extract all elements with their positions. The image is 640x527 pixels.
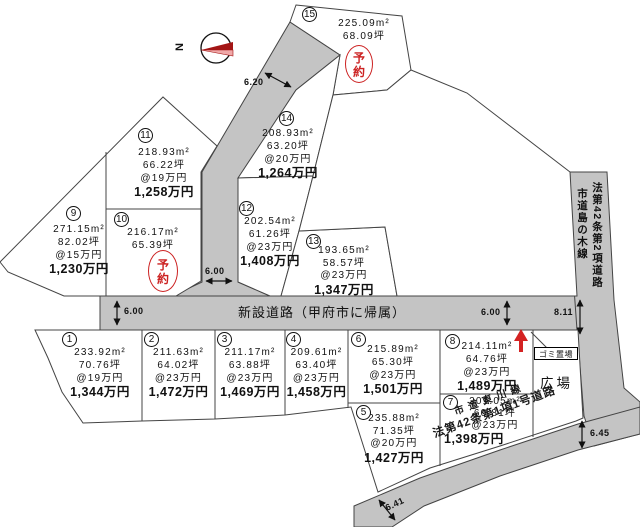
plot-price: 1,344万円 [60, 386, 140, 399]
plot-unit-price: @19万円 [60, 372, 140, 385]
plot-number: 9 [66, 206, 81, 221]
plot-area: 211.63m² [143, 346, 214, 359]
plot-price: 1,458万円 [285, 386, 348, 399]
plot-tsubo: 65.39坪 [106, 239, 200, 252]
plot-unit-price: @23万円 [349, 369, 437, 382]
garbage-label: ゴミ置場 [534, 347, 578, 360]
plot-tsubo: 63.20坪 [248, 140, 328, 153]
land-plot-map: N 新設道路（甲府市に帰属） 法第42条第2項道路 市道島の木線 市道東川線 法… [0, 0, 640, 527]
plot-area: 225.09m² [320, 17, 408, 30]
plot-block-15: 15 225.09m² 68.09坪 予約 [296, 4, 408, 43]
plot-unit-price: @23万円 [300, 270, 388, 283]
plot-number: 13 [306, 234, 321, 249]
plaza-label: 広場 [540, 372, 573, 392]
plot-block-14: 14 208.93m² 63.20坪 @20万円 1,264万円 [248, 110, 328, 180]
plot-unit-price: @20万円 [351, 438, 437, 451]
measure-left-road: 6.00 [124, 306, 144, 316]
plot-number: 14 [279, 111, 294, 126]
plot-area: 233.92m² [60, 346, 140, 359]
plot-number: 8 [445, 334, 460, 349]
plot-price: 1,489万円 [442, 380, 532, 393]
measure-top-road: 6.20 [244, 77, 264, 87]
plot-tsubo: 70.76坪 [60, 359, 140, 372]
plot-block-5: 5 235.88m² 71.35坪 @20万円 1,427万円 [351, 402, 437, 464]
plot-price: 1,427万円 [351, 452, 437, 465]
plot-block-13: 13 193.65m² 58.57坪 @23万円 1,347万円 [300, 229, 388, 296]
plot-tsubo: 61.26坪 [233, 228, 307, 241]
plot-number: 12 [239, 201, 254, 216]
plot-number: 5 [356, 405, 371, 420]
right-road-label: 法第42条第2項道路 市道島の木線 [574, 182, 604, 312]
plot-tsubo: 65.30坪 [349, 356, 437, 369]
plot-unit-price: @23万円 [233, 241, 307, 254]
plot-tsubo: 63.88坪 [216, 359, 284, 372]
plot-number: 2 [144, 332, 159, 347]
plot-area: 211.17m² [216, 346, 284, 359]
plot-number: 4 [286, 332, 301, 347]
plot-price: 1,230万円 [36, 263, 122, 276]
plot-price: 1,347万円 [300, 284, 388, 297]
plot-unit-price: @23万円 [143, 372, 214, 385]
plot-tsubo: 60.81坪 [441, 408, 533, 420]
plot-block-10: 10 216.17m² 65.39坪 予約 [106, 209, 200, 252]
reserved-stamp: 予約 [345, 45, 373, 83]
plot-number: 10 [114, 212, 129, 227]
reserved-stamp: 予約 [148, 250, 178, 292]
right-road-class: 法第42条第2項道路 [589, 182, 604, 312]
plot-tsubo: 68.09坪 [320, 30, 408, 43]
plot-number: 11 [138, 128, 153, 143]
plot-area: 208.93m² [248, 127, 328, 140]
plot-price: 1,472万円 [143, 386, 214, 399]
plot-price: 1,258万円 [124, 186, 204, 199]
new-road-label: 新設道路（甲府市に帰属） [238, 302, 428, 321]
measure-right-road: 6.00 [481, 307, 501, 317]
plot-block-11: 11 218.93m² 66.22坪 @19万円 1,258万円 [124, 127, 204, 199]
plot-unit-price: @23万円 [441, 420, 533, 432]
plot-tsubo: 63.40坪 [285, 359, 348, 372]
plot-price: 1,398万円 [441, 433, 533, 445]
plot-block-12: 12 202.54m² 61.26坪 @23万円 1,408万円 [233, 199, 307, 268]
measure-bottom-right: 6.45 [590, 428, 610, 438]
plot-block-4: 4 209.61m² 63.40坪 @23万円 1,458万円 [285, 331, 348, 399]
plot-block-3: 3 211.17m² 63.88坪 @23万円 1,469万円 [216, 331, 284, 399]
plot-unit-price: @19万円 [124, 172, 204, 185]
plot-number: 15 [302, 7, 317, 22]
plot-block-7: 7 201.05m² 60.81坪 @23万円 1,398万円 [441, 393, 533, 445]
reserved-stamp-text: 予約 [157, 258, 169, 286]
plot-tsubo: 64.02坪 [143, 359, 214, 372]
plot-area: 209.61m² [285, 346, 348, 359]
plot-tsubo: 71.35坪 [351, 426, 437, 439]
plot-unit-price: @20万円 [248, 153, 328, 166]
plot-unit-price: @23万円 [216, 372, 284, 385]
plot-block-2: 2 211.63m² 64.02坪 @23万円 1,472万円 [143, 331, 214, 399]
right-road-name: 市道島の木線 [574, 182, 589, 312]
plot-block-8: 8 214.11m² 64.76坪 @23万円 1,489万円 [442, 331, 532, 393]
plot-tsubo: 64.76坪 [442, 353, 532, 366]
plot-unit-price: @23万円 [442, 366, 532, 379]
plot-tsubo: 66.22坪 [124, 159, 204, 172]
plot-number: 6 [351, 332, 366, 347]
plot-area: 216.17m² [106, 226, 200, 239]
plot-block-6: 6 215.89m² 65.30坪 @23万円 1,501万円 [349, 331, 437, 396]
measure-mid-road: 6.00 [205, 266, 225, 276]
plot-price: 1,469万円 [216, 386, 284, 399]
reserved-stamp-text: 予約 [353, 51, 365, 79]
plot-area: 202.54m² [233, 215, 307, 228]
plot-number: 3 [217, 332, 232, 347]
plot-block-1: 1 233.92m² 70.76坪 @19万円 1,344万円 [60, 331, 140, 399]
plot-tsubo: 58.57坪 [300, 258, 388, 271]
plot-price: 1,501万円 [349, 383, 437, 396]
plot-price: 1,408万円 [233, 255, 307, 268]
plot-number: 7 [443, 395, 458, 410]
plot-area: 218.93m² [124, 146, 204, 159]
plot-unit-price: @23万円 [285, 372, 348, 385]
north-label: N [174, 43, 186, 51]
measure-junction: 8.11 [554, 307, 573, 317]
plot-number: 1 [62, 332, 77, 347]
plot-price: 1,264万円 [248, 167, 328, 180]
